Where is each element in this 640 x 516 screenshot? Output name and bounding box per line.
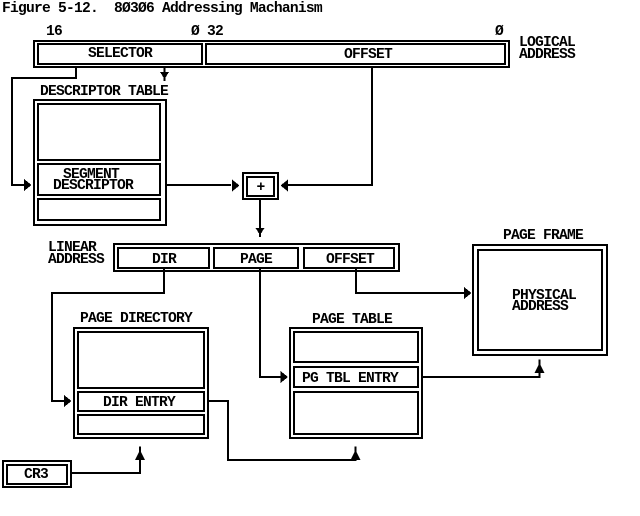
svg-text:Ø 32: Ø 32 <box>191 24 223 40</box>
svg-text:CR3: CR3 <box>24 467 49 483</box>
svg-text:+: + <box>257 180 266 196</box>
svg-text:PAGE DIRECTORY: PAGE DIRECTORY <box>80 311 193 327</box>
svg-text:PAGE FRAME: PAGE FRAME <box>503 228 584 244</box>
svg-text:Ø: Ø <box>495 24 504 40</box>
svg-text:DESCRIPTOR: DESCRIPTOR <box>53 178 134 194</box>
svg-text:DIR ENTRY: DIR ENTRY <box>103 395 176 411</box>
svg-text:PAGE: PAGE <box>240 252 273 268</box>
svg-text:Figure 5-12. 8Ø3Ø6 Addressing: Figure 5-12. 8Ø3Ø6 Addressing Machanism <box>2 1 323 17</box>
svg-text:ADDRESS: ADDRESS <box>48 252 105 268</box>
svg-text:PG TBL ENTRY: PG TBL ENTRY <box>302 371 399 387</box>
svg-text:SELECTOR: SELECTOR <box>88 46 153 62</box>
svg-text:DESCRIPTOR TABLE: DESCRIPTOR TABLE <box>40 84 169 100</box>
svg-text:OFFSET: OFFSET <box>326 252 375 268</box>
svg-text:OFFSET: OFFSET <box>344 47 393 63</box>
svg-text:PAGE TABLE: PAGE TABLE <box>312 312 393 328</box>
svg-text:ADDRESS: ADDRESS <box>512 299 569 315</box>
svg-text:ADDRESS: ADDRESS <box>519 47 576 63</box>
svg-text:16: 16 <box>46 24 62 40</box>
svg-text:DIR: DIR <box>152 252 177 268</box>
